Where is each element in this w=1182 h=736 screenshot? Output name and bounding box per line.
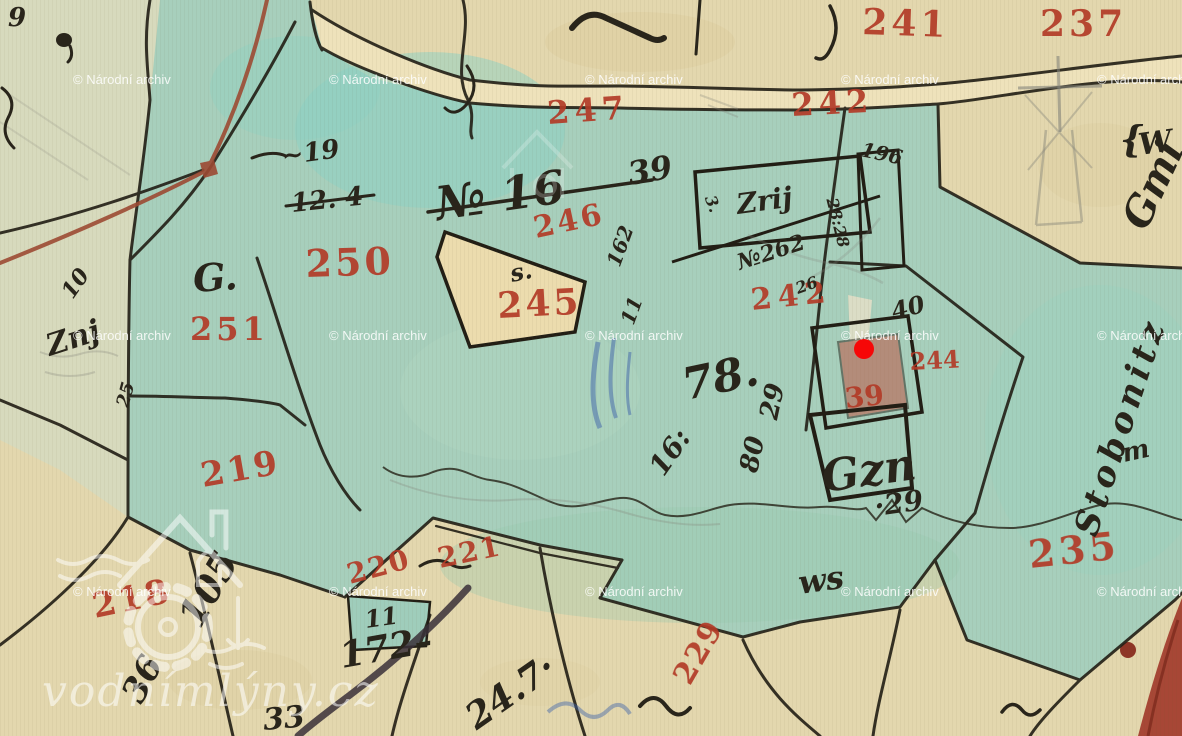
site-watermark-text: vodnímlýny.cz [42, 666, 380, 717]
archive-watermark-text: © Národní archiv [73, 72, 171, 87]
map-canvas: 241 237 247 242 250 251 245 246 242 244 … [0, 0, 1182, 736]
handwritten-annotation: 39 [625, 148, 675, 193]
archive-watermark-text: © Národní archiv [73, 584, 171, 599]
building-number-red: 39 [843, 378, 885, 415]
archive-watermark-text: © Národní archiv [585, 328, 683, 343]
ink-dot [56, 33, 72, 47]
archive-watermark-text: © Národní archiv [1097, 328, 1182, 343]
parcel-number-red: 241 [862, 1, 951, 46]
archive-watermark-text: © Národní archiv [585, 72, 683, 87]
archive-watermark-text: © Národní archiv [841, 72, 939, 87]
handwritten-annotation: ·29 [872, 483, 925, 522]
archive-watermark-text: © Národní archiv [841, 584, 939, 599]
archive-watermark-text: © Národní archiv [841, 328, 939, 343]
parcel-number-red: 251 [190, 310, 269, 348]
archive-watermark-text: © Národní archiv [585, 584, 683, 599]
archive-watermark-text: © Národní archiv [1097, 584, 1182, 599]
handwritten-annotation: 9 [8, 3, 26, 33]
parcel-number-red: 237 [1040, 3, 1127, 45]
parcel-number-red: 247 [546, 88, 630, 132]
archive-watermark-text: © Národní archiv [329, 328, 427, 343]
archive-watermark-text: © Národní archiv [329, 584, 427, 599]
map-marker-dot[interactable] [854, 339, 874, 359]
handwritten-annotation: ws [796, 558, 846, 602]
cadastral-map-view[interactable]: 241 237 247 242 250 251 245 246 242 244 … [0, 0, 1182, 736]
archive-watermark-text: © Národní archiv [329, 72, 427, 87]
parcel-number-red: 250 [305, 238, 395, 286]
pencil-cross [1058, 56, 1060, 132]
archive-watermark-text: © Národní archiv [1097, 72, 1182, 87]
parcel-number-red: 242 [790, 82, 874, 124]
parcel-number-red: 244 [909, 344, 961, 376]
parcel-number-red: 245 [496, 281, 582, 327]
handwritten-annotation: G. [191, 253, 238, 301]
archive-watermark-text: © Národní archiv [73, 328, 171, 343]
